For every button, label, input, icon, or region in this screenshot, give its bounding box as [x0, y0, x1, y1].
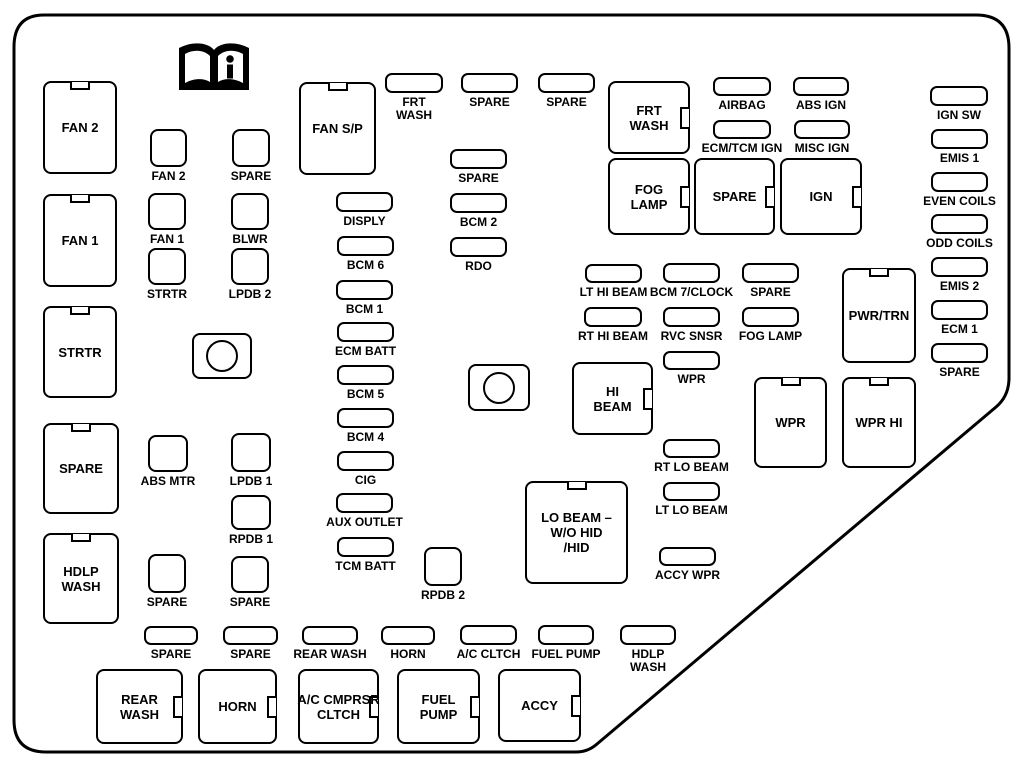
bcm1-fuse-label-line: BCM 1: [265, 303, 465, 316]
even-coils-fuse-label-line: EVEN COILS: [860, 195, 1024, 208]
rear-wash-relay-label: REARWASH: [98, 671, 181, 742]
rvc-snsr-fuse: [663, 307, 720, 327]
ecm1-fuse-label: ECM 1: [860, 323, 1024, 336]
disply-fuse-label: DISPLY: [265, 215, 465, 228]
lt-lo-beam-fuse-label: LT LO BEAM: [592, 504, 792, 517]
spare-fuse-mid-label: SPARE: [379, 172, 579, 185]
accy-wpr-fuse-label-line: ACCY WPR: [588, 569, 788, 582]
fuel-pump-relay-label: FUELPUMP: [399, 671, 478, 742]
abs-ign-fuse: [793, 77, 849, 96]
bcm5-fuse-label-line: BCM 5: [266, 388, 466, 401]
fog-lamp-relay-label-line: LAMP: [631, 197, 668, 212]
disply-fuse-label-line: DISPLY: [265, 215, 465, 228]
misc-ign-fuse: [794, 120, 850, 139]
fuel-pump-relay-label-line: FUEL: [422, 692, 456, 707]
fog-lamp-fuse: [742, 307, 799, 327]
frt-wash-fuse-label-line: WASH: [314, 109, 514, 122]
odd-coils-fuse: [931, 214, 988, 234]
horn-relay-label-line: HORN: [218, 699, 256, 714]
hdlp-wash-relay-left-label-line: WASH: [62, 579, 101, 594]
bcm4-fuse-label: BCM 4: [266, 431, 466, 444]
accy-relay-label-line: ACCY: [521, 698, 558, 713]
spare-sq-1-label: SPARE: [151, 170, 351, 183]
pwr-trn-relay-label-line: PWR/TRN: [849, 308, 910, 323]
bcm2-fuse: [450, 193, 507, 213]
fuel-pump-fuse: [538, 625, 594, 645]
hdlp-wash-fuse-label: HDLPWASH: [548, 648, 748, 674]
spare-sq-1: [232, 129, 270, 167]
frt-wash-fuse: [385, 73, 443, 93]
rpdb1-sq-fuse-label: RPDB 1: [151, 533, 351, 546]
bcm6-fuse-label: BCM 6: [266, 259, 466, 272]
rt-lo-beam-fuse-label: RT LO BEAM: [592, 461, 792, 474]
ign-relay: IGN: [780, 158, 862, 235]
fan1-sq-fuse: [148, 193, 186, 230]
spare-fuse-bottom-2: [223, 626, 278, 645]
aux-outlet-fuse: [336, 493, 393, 513]
lpdb1-sq-fuse: [231, 433, 271, 472]
info-book-icon: [175, 40, 253, 98]
ac-cmprsr-cltch-relay-label-line: CLTCH: [317, 707, 360, 722]
wpr-fuse-label: WPR: [592, 373, 792, 386]
spare-relay-left-label-line: SPARE: [59, 461, 103, 476]
spare-sq-3-label-line: SPARE: [150, 596, 350, 609]
rear-wash-relay: REARWASH: [96, 669, 183, 744]
lt-hi-beam-fuse: [585, 264, 642, 283]
fuel-pump-relay: FUELPUMP: [397, 669, 480, 744]
lpdb2-sq-fuse-label: LPDB 2: [150, 288, 350, 301]
accy-wpr-fuse: [659, 547, 716, 566]
lpdb1-sq-fuse-label-line: LPDB 1: [151, 475, 351, 488]
rear-wash-fuse: [302, 626, 358, 645]
emis2-fuse-label: EMIS 2: [860, 280, 1024, 293]
spare-sq-3: [231, 556, 269, 593]
fog-lamp-fuse-label-line: FOG LAMP: [671, 330, 871, 343]
fan-sp-relay-label-line: FAN S/P: [312, 121, 363, 136]
blwr-sq-fuse-label-line: BLWR: [150, 233, 350, 246]
lo-beam-relay-label: LO BEAM –W/O HID/HID: [527, 483, 626, 582]
emis1-fuse-label: EMIS 1: [860, 152, 1024, 165]
spare-relay-mid-label: SPARE: [696, 160, 773, 233]
cig-fuse: [337, 451, 394, 471]
ac-cmprsr-cltch-relay-label: A/C CMPRSRCLTCH: [300, 671, 377, 742]
fog-lamp-fuse-label: FOG LAMP: [671, 330, 871, 343]
bcm7-clock-fuse: [663, 263, 720, 283]
emis2-fuse: [931, 257, 988, 277]
spare-relay-left: SPARE: [43, 423, 119, 514]
spare-fuse-top-1: [461, 73, 518, 93]
hdlp-wash-fuse: [620, 625, 676, 645]
aux-outlet-fuse-label-line: AUX OUTLET: [265, 516, 465, 529]
spare-fuse-mid: [450, 149, 507, 169]
rpdb1-sq-fuse: [231, 495, 271, 530]
even-coils-fuse: [931, 172, 988, 192]
lt-lo-beam-fuse-label-line: LT LO BEAM: [592, 504, 792, 517]
accy-wpr-fuse-label: ACCY WPR: [588, 569, 788, 582]
rpdb2-sq-fuse: [424, 547, 462, 586]
ac-cmprsr-cltch-relay: A/C CMPRSRCLTCH: [298, 669, 379, 744]
ecm1-fuse: [931, 300, 988, 320]
ecm-tcm-ign-fuse: [713, 120, 771, 139]
spare-relay-mid-label-line: SPARE: [713, 189, 757, 204]
ign-sw-fuse: [930, 86, 988, 106]
wpr-hi-relay-label-line: WPR HI: [856, 415, 903, 430]
emis1-fuse-label-line: EMIS 1: [860, 152, 1024, 165]
relay-circle-1: [192, 333, 252, 379]
wpr-fuse-label-line: WPR: [592, 373, 792, 386]
ign-sw-fuse-label: IGN SW: [859, 109, 1024, 122]
spare-sq-1-label-line: SPARE: [151, 170, 351, 183]
wpr-fuse: [663, 351, 720, 370]
strtr-relay-label: STRTR: [45, 308, 115, 396]
emis1-fuse: [931, 129, 988, 149]
fan2-relay: FAN 2: [43, 81, 117, 174]
spare-fuse-mid-right-label: SPARE: [671, 286, 871, 299]
disply-fuse: [336, 192, 393, 212]
lt-lo-beam-fuse: [663, 482, 720, 501]
wpr-relay-label: WPR: [756, 379, 825, 466]
hi-beam-relay-label-line: BEAM: [593, 399, 631, 414]
rear-wash-relay-label-line: REAR: [121, 692, 158, 707]
wpr-hi-relay-label: WPR HI: [844, 379, 914, 466]
spare-fuse-top-2: [538, 73, 595, 93]
rt-hi-beam-fuse: [584, 307, 642, 327]
fan2-relay-label: FAN 2: [45, 83, 115, 172]
fan2-relay-label-line: FAN 2: [62, 120, 99, 135]
ecm-batt-fuse-label-line: ECM BATT: [266, 345, 466, 358]
even-coils-fuse-label: EVEN COILS: [860, 195, 1024, 208]
spare-fuse-mid-right-label-line: SPARE: [671, 286, 871, 299]
hdlp-wash-relay-left-label-line: HDLP: [63, 564, 98, 579]
spare-fuse-bottom-1: [144, 626, 198, 645]
ign-relay-label-line: IGN: [809, 189, 832, 204]
fuel-pump-relay-label-line: PUMP: [420, 707, 458, 722]
spare-relay-left-label: SPARE: [45, 425, 117, 512]
spare-fuse-mid-right: [742, 263, 799, 283]
bcm4-fuse: [337, 408, 394, 428]
rear-wash-relay-label-line: WASH: [120, 707, 159, 722]
ecm1-fuse-label-line: ECM 1: [860, 323, 1024, 336]
relay-circle-2-circle: [483, 372, 515, 404]
horn-relay-label: HORN: [200, 671, 275, 742]
spare-fuse-right-col: [931, 343, 988, 363]
ign-relay-label: IGN: [782, 160, 860, 233]
spare-relay-mid: SPARE: [694, 158, 775, 235]
horn-fuse: [381, 626, 435, 645]
odd-coils-fuse-label-line: ODD COILS: [860, 237, 1024, 250]
lo-beam-relay-label-line: /HID: [564, 540, 590, 555]
lpdb2-sq-fuse: [231, 248, 269, 285]
abs-mtr-sq-fuse: [148, 435, 188, 472]
rpdb2-sq-fuse-label-line: RPDB 2: [343, 589, 543, 602]
emis2-fuse-label-line: EMIS 2: [860, 280, 1024, 293]
odd-coils-fuse-label: ODD COILS: [860, 237, 1024, 250]
lpdb1-sq-fuse-label: LPDB 1: [151, 475, 351, 488]
blwr-sq-fuse-label: BLWR: [150, 233, 350, 246]
bcm1-fuse-label: BCM 1: [265, 303, 465, 316]
spare-fuse-top-2-label: SPARE: [467, 96, 667, 109]
blwr-sq-fuse: [231, 193, 269, 230]
spare-sq-3-label: SPARE: [150, 596, 350, 609]
spare-sq-2: [148, 554, 186, 593]
wpr-relay-label-line: WPR: [775, 415, 805, 430]
rt-lo-beam-fuse: [663, 439, 720, 458]
ecm-batt-fuse: [337, 322, 394, 342]
strtr-relay-label-line: STRTR: [58, 345, 101, 360]
spare-fuse-mid-label-line: SPARE: [379, 172, 579, 185]
rdo-fuse: [450, 237, 507, 257]
strtr-sq-fuse: [148, 248, 186, 285]
accy-relay: ACCY: [498, 669, 581, 742]
ac-cltch-fuse: [460, 625, 517, 645]
fog-lamp-relay: FOGLAMP: [608, 158, 690, 235]
ecm-batt-fuse-label: ECM BATT: [266, 345, 466, 358]
ign-sw-fuse-label-line: IGN SW: [859, 109, 1024, 122]
fan2-sq-fuse: [150, 129, 187, 167]
frt-wash-relay-label-line: WASH: [630, 118, 669, 133]
bcm5-fuse: [337, 365, 394, 385]
fog-lamp-relay-label-line: FOG: [635, 182, 663, 197]
bcm6-fuse-label-line: BCM 6: [266, 259, 466, 272]
lpdb2-sq-fuse-label-line: LPDB 2: [150, 288, 350, 301]
accy-relay-label: ACCY: [500, 671, 579, 740]
rpdb2-sq-fuse-label: RPDB 2: [343, 589, 543, 602]
bcm5-fuse-label: BCM 5: [266, 388, 466, 401]
relay-circle-2: [468, 364, 530, 411]
rt-lo-beam-fuse-label-line: RT LO BEAM: [592, 461, 792, 474]
spare-fuse-right-col-label-line: SPARE: [860, 366, 1024, 379]
horn-relay: HORN: [198, 669, 277, 744]
hdlp-wash-fuse-label-line: WASH: [548, 661, 748, 674]
wpr-relay: WPR: [754, 377, 827, 468]
aux-outlet-fuse-label: AUX OUTLET: [265, 516, 465, 529]
hdlp-wash-relay-left: HDLPWASH: [43, 533, 119, 624]
bcm4-fuse-label-line: BCM 4: [266, 431, 466, 444]
lo-beam-relay-label-line: W/O HID: [551, 525, 603, 540]
ac-cmprsr-cltch-relay-label-line: A/C CMPRSR: [297, 692, 379, 707]
wpr-hi-relay: WPR HI: [842, 377, 916, 468]
strtr-relay: STRTR: [43, 306, 117, 398]
airbag-fuse: [713, 77, 771, 96]
relay-circle-1-circle: [206, 340, 238, 372]
fog-lamp-relay-label: FOGLAMP: [610, 160, 688, 233]
spare-fuse-right-col-label: SPARE: [860, 366, 1024, 379]
rpdb1-sq-fuse-label-line: RPDB 1: [151, 533, 351, 546]
spare-fuse-top-2-label-line: SPARE: [467, 96, 667, 109]
fuse-box-diagram: FAN 2FAN 1STRTRSPAREHDLPWASHFAN S/PFRTWA…: [0, 0, 1024, 763]
